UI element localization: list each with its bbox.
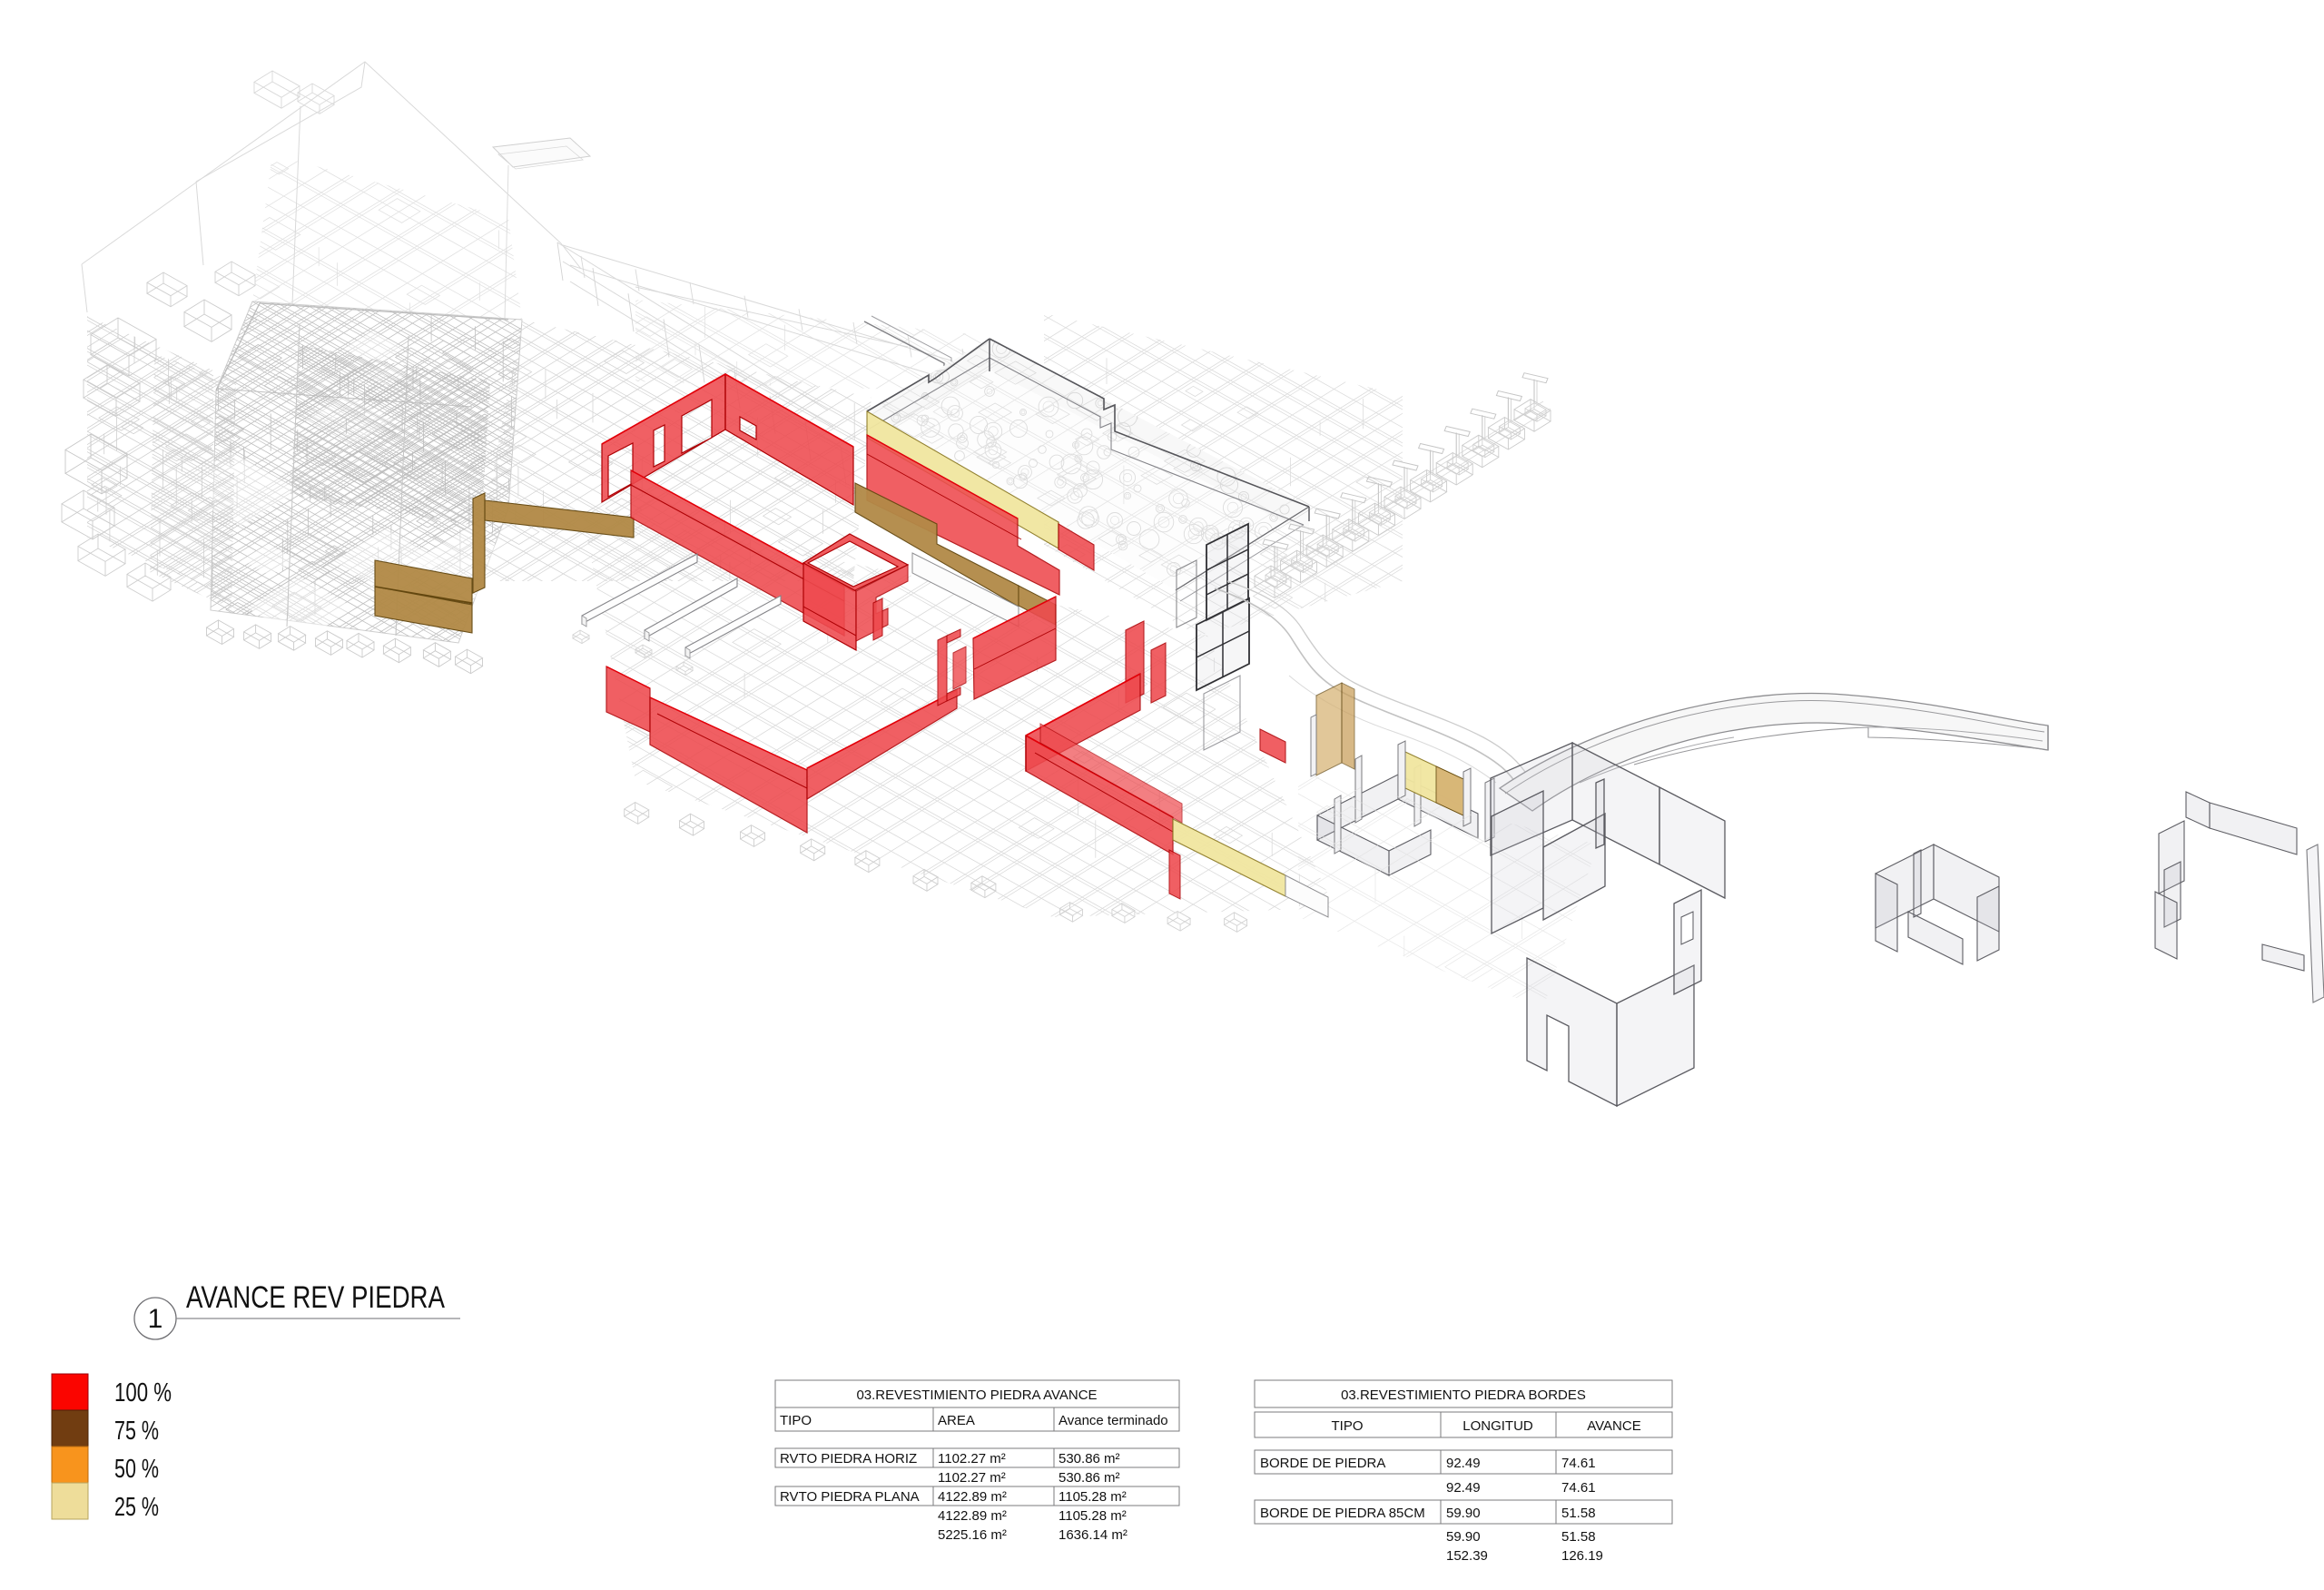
svg-text:126.19: 126.19 xyxy=(1561,1548,1603,1564)
svg-text:75 %: 75 % xyxy=(114,1417,159,1446)
svg-text:100 %: 100 % xyxy=(114,1378,172,1407)
svg-text:AREA: AREA xyxy=(938,1413,975,1428)
svg-text:1105.28 m²: 1105.28 m² xyxy=(1059,1508,1127,1524)
svg-text:LONGITUD: LONGITUD xyxy=(1462,1418,1533,1434)
svg-text:51.58: 51.58 xyxy=(1561,1529,1596,1545)
svg-text:74.61: 74.61 xyxy=(1561,1480,1596,1496)
svg-text:152.39: 152.39 xyxy=(1446,1548,1488,1564)
svg-text:TIPO: TIPO xyxy=(1331,1418,1363,1434)
svg-text:BORDE DE PIEDRA: BORDE DE PIEDRA xyxy=(1260,1456,1385,1471)
svg-text:74.61: 74.61 xyxy=(1561,1456,1596,1471)
svg-text:51.58: 51.58 xyxy=(1561,1506,1596,1521)
svg-text:530.86 m²: 530.86 m² xyxy=(1059,1451,1120,1467)
svg-text:AVANCE REV PIEDRA: AVANCE REV PIEDRA xyxy=(186,1280,445,1315)
svg-text:TIPO: TIPO xyxy=(780,1413,812,1428)
svg-text:1: 1 xyxy=(148,1304,163,1334)
svg-text:92.49: 92.49 xyxy=(1446,1480,1481,1496)
svg-text:1102.27 m²: 1102.27 m² xyxy=(938,1470,1006,1486)
svg-text:25 %: 25 % xyxy=(114,1493,159,1522)
svg-text:59.90: 59.90 xyxy=(1446,1506,1481,1521)
svg-text:5225.16 m²: 5225.16 m² xyxy=(938,1527,1007,1543)
svg-text:1636.14 m²: 1636.14 m² xyxy=(1059,1527,1128,1543)
svg-text:Avance terminado: Avance terminado xyxy=(1059,1413,1168,1428)
svg-text:AVANCE: AVANCE xyxy=(1587,1418,1640,1434)
svg-text:RVTO PIEDRA PLANA: RVTO PIEDRA PLANA xyxy=(780,1489,920,1505)
svg-text:1102.27 m²: 1102.27 m² xyxy=(938,1451,1006,1467)
svg-text:BORDE DE PIEDRA 85CM: BORDE DE PIEDRA 85CM xyxy=(1260,1506,1425,1521)
svg-text:92.49: 92.49 xyxy=(1446,1456,1481,1471)
svg-text:03.REVESTIMIENTO PIEDRA AVANCE: 03.REVESTIMIENTO PIEDRA AVANCE xyxy=(856,1388,1097,1403)
svg-text:RVTO PIEDRA HORIZ: RVTO PIEDRA HORIZ xyxy=(780,1451,917,1467)
svg-text:50 %: 50 % xyxy=(114,1455,159,1484)
svg-text:1105.28 m²: 1105.28 m² xyxy=(1059,1489,1127,1505)
svg-text:59.90: 59.90 xyxy=(1446,1529,1481,1545)
svg-text:4122.89 m²: 4122.89 m² xyxy=(938,1489,1007,1505)
svg-text:03.REVESTIMIENTO PIEDRA BORDES: 03.REVESTIMIENTO PIEDRA BORDES xyxy=(1341,1388,1586,1403)
svg-text:530.86 m²: 530.86 m² xyxy=(1059,1470,1120,1486)
svg-text:4122.89 m²: 4122.89 m² xyxy=(938,1508,1007,1524)
